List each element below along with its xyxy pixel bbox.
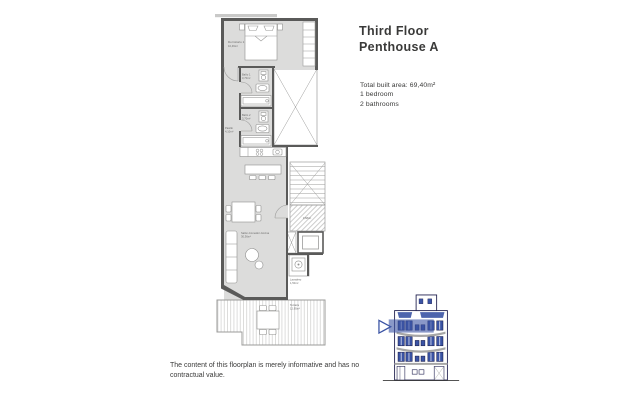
title-line-2: Penthouse A — [359, 40, 439, 56]
shower — [241, 136, 271, 147]
shower — [241, 96, 271, 107]
island — [245, 165, 281, 174]
built-area-text: Total built area: 69,40m² — [360, 81, 435, 90]
terrace-table — [257, 311, 279, 329]
laundry: Lavadero 1,50m² — [289, 255, 309, 285]
dining-table — [232, 202, 255, 222]
roof-ledge — [215, 14, 277, 17]
hall-label: Pasillo — [225, 126, 233, 130]
third-floor-highlight — [389, 319, 434, 332]
terrace-area-label: 12,95m² — [290, 307, 300, 311]
coffee-table — [246, 249, 259, 262]
bath1-label: Baño 1 — [242, 73, 251, 77]
floorplan-drawing: 3,68m² Lavadero 1,50m² — [195, 5, 345, 350]
living-label: Salón-Comedor-Cocina — [241, 231, 270, 235]
summary-block: Total built area: 69,40m² 1 bedroom 2 ba… — [360, 81, 435, 109]
page-title: Third Floor Penthouse A — [359, 24, 439, 55]
bathrooms-text: 2 bathrooms — [360, 100, 435, 109]
bedrooms-text: 1 bedroom — [360, 90, 435, 99]
landing-area-label: 3,68m² — [303, 216, 311, 220]
title-line-1: Third Floor — [359, 24, 439, 40]
laundry-area-label: 1,50m² — [290, 281, 298, 285]
living-area-label: 30,36m² — [241, 235, 251, 239]
floorplan-page: Third Floor Penthouse A Total built area… — [0, 0, 630, 401]
bedroom-label: Dormitorio 1 — [228, 40, 245, 44]
hall-area-label: 4,10m² — [225, 130, 233, 134]
staircase — [290, 162, 325, 205]
void-area — [274, 69, 317, 145]
bath2-area-label: 3,70m² — [242, 117, 250, 121]
bed — [245, 24, 277, 60]
laundry-label: Lavadero — [290, 278, 302, 282]
disclaimer-text: The content of this floorplan is merely … — [170, 361, 360, 381]
bedroom-area-label: 10,46m² — [228, 44, 238, 48]
elevator — [298, 232, 323, 253]
bath1-area-label: 3,70m² — [242, 76, 250, 80]
building-elevation-icon — [377, 288, 465, 386]
stair-landing: 3,68m² — [290, 205, 325, 231]
kitchen-sink — [273, 149, 282, 155]
bath2-label: Baño 2 — [242, 113, 251, 117]
duct-shaft — [287, 232, 296, 253]
terrace-label: Terraza — [290, 303, 299, 307]
terrace — [217, 300, 325, 345]
